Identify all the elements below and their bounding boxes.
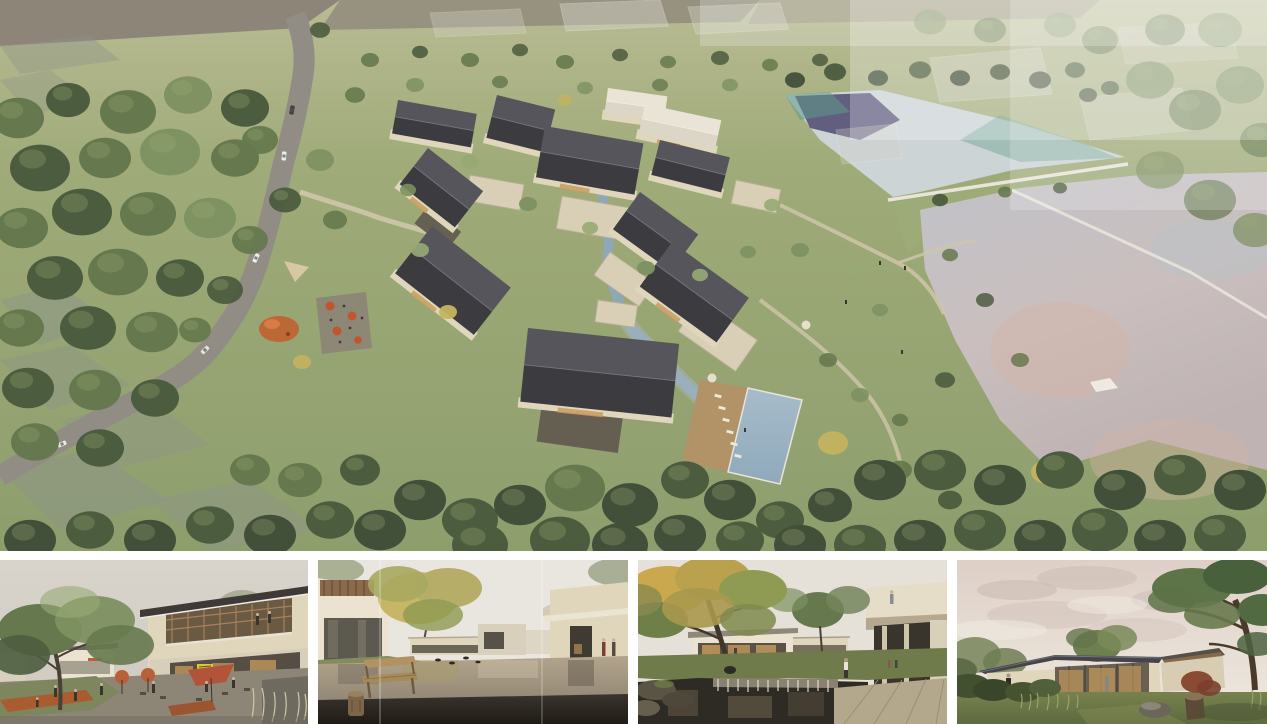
cafe-terrace [316,292,372,354]
water-courtyard-rendering [318,560,628,724]
roof-terrace-figure [890,594,894,604]
thumbnail-plaza-panel [0,560,308,724]
aerial-rendering [0,0,1267,551]
garden-pond-rendering [638,560,947,724]
car [281,151,286,160]
thumbnail-row [0,560,1267,724]
lawn-umbrella [802,321,811,330]
rock-highlight [1141,702,1161,710]
back-buildings [786,637,850,653]
right-guest-house [544,582,628,668]
aerial-rendering-panel [0,0,1267,551]
log-stool [348,691,364,716]
rendering-collage [0,0,1267,724]
thumbnail-water-courtyard-panel [318,560,628,724]
plaza-rendering [0,560,308,724]
walking-figure [844,658,848,678]
figure-inside [1105,676,1109,692]
seated-figure [724,666,736,674]
pool-umbrella [708,374,717,383]
foreground-shadow [0,716,308,724]
playground [259,316,299,342]
lawn-pavilion-rendering [957,560,1267,724]
thumbnail-garden-pond-panel [638,560,947,724]
thumbnail-pavilion-panel [957,560,1267,724]
